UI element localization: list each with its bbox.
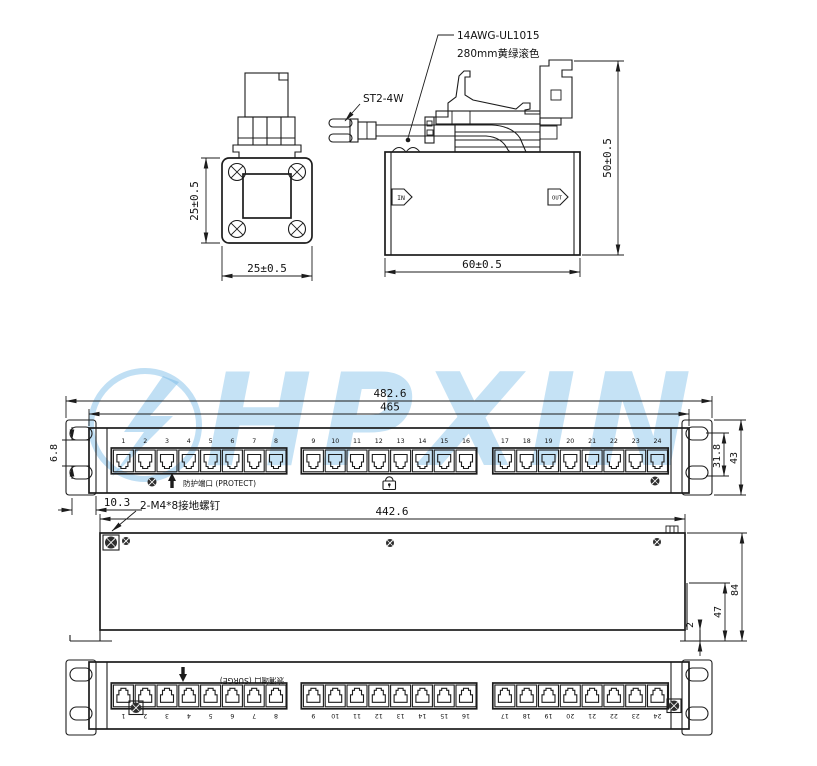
din-rail-bracket [425, 60, 572, 152]
dim-module-height: 25±0.5 [188, 181, 201, 221]
terminal-leader-line [345, 104, 360, 121]
wire-label-line2: 280mm黄绿滚色 [457, 47, 540, 60]
port-number: 22 [610, 438, 618, 445]
port-number: 13 [397, 712, 405, 719]
dim-module-width: 25±0.5 [247, 262, 287, 275]
ground-wire [376, 125, 526, 152]
module-side-view: IN OUT [329, 30, 624, 277]
port-number: 10 [331, 712, 339, 719]
watermark-lightning-icon [112, 376, 179, 477]
port-number: 23 [632, 712, 640, 719]
port-number: 3 [165, 712, 169, 719]
out-label: OUT [552, 196, 563, 202]
screw-icon [229, 164, 246, 181]
dim-overall-width: 482.6 [373, 387, 406, 400]
rj45-port: 3 [157, 438, 177, 472]
protect-label: 防护端口 (PROTECT) [183, 478, 256, 488]
port-number: 17 [501, 438, 509, 445]
port-number: 2 [143, 712, 147, 719]
port-number: 15 [440, 438, 448, 445]
port-number: 23 [632, 438, 640, 445]
rj45-port: 17 [495, 685, 515, 719]
port-number: 4 [187, 438, 191, 445]
screw-icon [653, 538, 661, 546]
rj45-port: 19 [539, 685, 559, 719]
port-number: 15 [440, 712, 448, 719]
ground-screw-icon [103, 535, 119, 550]
rj45-port: 15 [434, 685, 454, 719]
port-number: 1 [121, 438, 125, 445]
port-number: 21 [588, 438, 596, 445]
screw-icon [289, 164, 306, 181]
port-number: 7 [252, 712, 256, 719]
rj45-port: 14 [412, 685, 432, 719]
dim-ear-offset: 10.3 [104, 496, 131, 509]
port-number: 14 [418, 438, 426, 445]
drawing-canvas: HPXIN 25±0.5 25±0.5 IN OUT [0, 0, 817, 766]
port-number: 9 [311, 438, 315, 445]
rj45-port: 5 [201, 685, 221, 719]
rj45-port: 16 [456, 685, 476, 719]
dim-depth: 84 [730, 584, 741, 596]
rj45-port: 1 [113, 685, 133, 719]
screw-icon [386, 539, 394, 547]
module-front-view: 25±0.5 25±0.5 [188, 73, 312, 281]
fork-terminal [329, 119, 376, 142]
port-number: 7 [252, 438, 256, 445]
port-number: 22 [610, 712, 618, 719]
dim-panel-height: 43 [729, 452, 740, 464]
port-number: 11 [353, 712, 361, 719]
port-number: 16 [462, 712, 470, 719]
port-number: 12 [375, 438, 383, 445]
port-number: 4 [187, 712, 191, 719]
rj45-port: 2 [135, 685, 155, 719]
port-number: 5 [209, 438, 213, 445]
screw-icon [105, 537, 117, 549]
rj45-port: 6 [222, 685, 242, 719]
port-number: 13 [397, 438, 405, 445]
port-number: 24 [653, 438, 661, 445]
dim-flange: 47 [713, 606, 724, 618]
port-number: 9 [311, 712, 315, 719]
down-arrow-icon [179, 674, 187, 682]
port-number: 11 [353, 438, 361, 445]
port-number: 10 [331, 438, 339, 445]
panel-bottom-view: 123456789101112131415161718192021222324 … [66, 660, 712, 735]
port-number: 20 [566, 438, 574, 445]
rj45-port: 1 [113, 438, 133, 472]
ground-screw-icon [667, 699, 681, 713]
wire-label-line1: 14AWG-UL1015 [457, 30, 540, 42]
rj45-port: 18 [517, 685, 537, 719]
panel-rear-view: 442.6 2 47 84 [70, 505, 747, 656]
screw-icon [148, 478, 157, 487]
rj45-port: 10 [325, 685, 345, 719]
port-number: 17 [501, 712, 509, 719]
ground-screw-label: 2-M4*8接地螺钉 [140, 499, 221, 512]
port-number: 19 [544, 712, 552, 719]
screw-icon [122, 537, 130, 545]
port-number: 21 [588, 712, 596, 719]
rj45-port: 9 [303, 685, 323, 719]
rj45-port: 3 [157, 685, 177, 719]
surge-label: 浪涌端口 (SURGE) [220, 676, 284, 686]
in-label: IN [397, 194, 405, 202]
rj45-port: 24 [648, 685, 668, 719]
port-number: 24 [653, 712, 661, 719]
screw-icon [289, 221, 306, 238]
terminal-label: ST2-4W [363, 93, 404, 105]
port-number: 5 [209, 712, 213, 719]
dim-rear-width: 442.6 [375, 505, 408, 518]
rear-body [100, 533, 685, 630]
rj45-port: 7 [244, 685, 264, 719]
port-number: 14 [418, 712, 426, 719]
dim-hole-spacing: 31.8 [712, 444, 723, 468]
port-number: 20 [566, 712, 574, 719]
rj45-port: 21 [582, 685, 602, 719]
port-number: 18 [523, 712, 531, 719]
rj45-port: 23 [626, 685, 646, 719]
port-number: 6 [230, 712, 234, 719]
port-number: 19 [544, 438, 552, 445]
rj45-port: 8 [266, 685, 286, 719]
screw-icon [131, 703, 142, 714]
dim-module-side-height: 50±0.5 [601, 138, 614, 178]
screw-icon [651, 477, 660, 486]
wire-leader-line [408, 35, 454, 138]
port-number: 18 [523, 438, 531, 445]
rj45-port: 20 [560, 685, 580, 719]
rj45-port: 13 [391, 685, 411, 719]
dim-module-side-width: 60±0.5 [462, 258, 502, 271]
ground-screw-icon [129, 701, 143, 715]
port-number: 16 [462, 438, 470, 445]
rj45-port: 22 [604, 685, 624, 719]
screw-icon [229, 221, 246, 238]
ground-leader-line [112, 511, 136, 531]
dim-ear-hole-gap: 6.8 [49, 444, 60, 462]
rj45-port: 12 [369, 685, 389, 719]
rj45-port: 11 [347, 685, 367, 719]
port-number: 3 [165, 438, 169, 445]
port-number: 12 [375, 712, 383, 719]
port-number: 2 [143, 438, 147, 445]
port-number: 1 [121, 712, 125, 719]
dim-lip: 2 [685, 622, 696, 628]
dim-body-width: 465 [380, 401, 400, 414]
rj45-port: 4 [179, 685, 199, 719]
port-number: 8 [274, 438, 278, 445]
technical-drawing: HPXIN 25±0.5 25±0.5 IN OUT [0, 0, 817, 766]
port-number: 8 [274, 712, 278, 719]
screw-icon [669, 701, 680, 712]
port-number: 6 [230, 438, 234, 445]
